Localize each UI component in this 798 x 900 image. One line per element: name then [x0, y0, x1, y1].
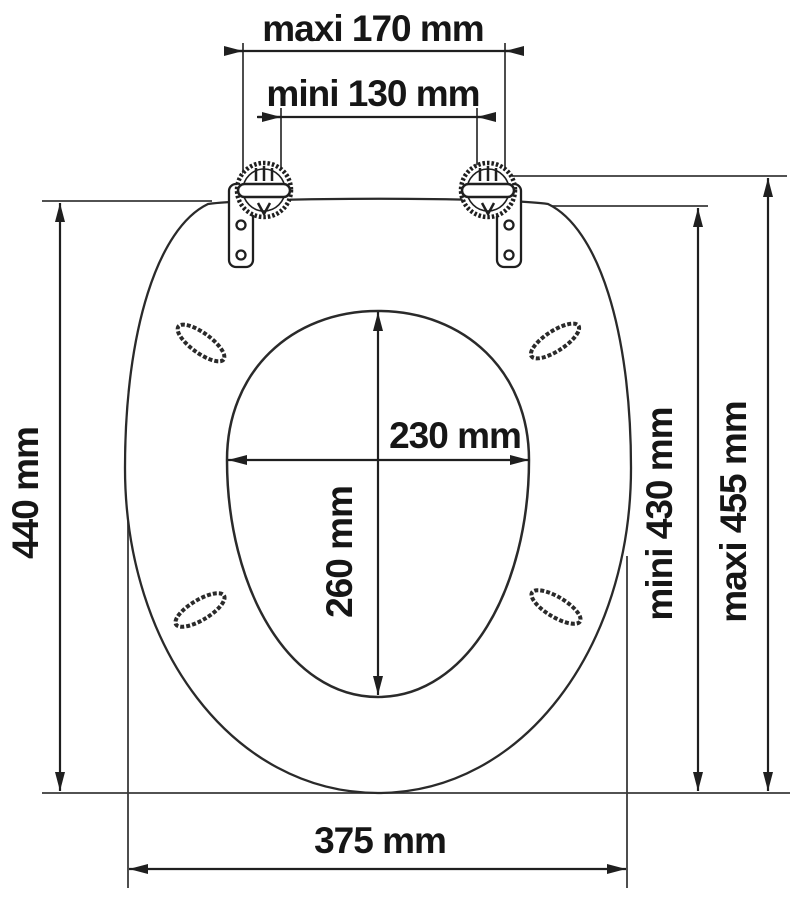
label-overall-length-max: maxi 455 mm — [713, 401, 754, 622]
label-opening-width: 230 mm — [389, 415, 521, 456]
screw-hole — [505, 221, 514, 230]
hinge-slot-right — [462, 184, 514, 197]
label-seat-length: 440 mm — [5, 427, 46, 559]
diagram-canvas: maxi 170 mm mini 130 mm 230 mm 260 mm 44… — [0, 0, 798, 900]
label-seat-width: 375 mm — [314, 820, 446, 861]
label-hinge-spacing-min: mini 130 mm — [266, 73, 479, 114]
screw-hole — [505, 251, 514, 260]
label-overall-length-min: mini 430 mm — [639, 407, 680, 620]
toilet-seat-dimension-diagram: maxi 170 mm mini 130 mm 230 mm 260 mm 44… — [0, 0, 798, 900]
hinge-slot-left — [238, 184, 290, 197]
screw-hole — [237, 221, 246, 230]
screw-hole — [237, 251, 246, 260]
label-opening-depth: 260 mm — [319, 486, 360, 618]
label-hinge-spacing-max: maxi 170 mm — [262, 8, 483, 49]
